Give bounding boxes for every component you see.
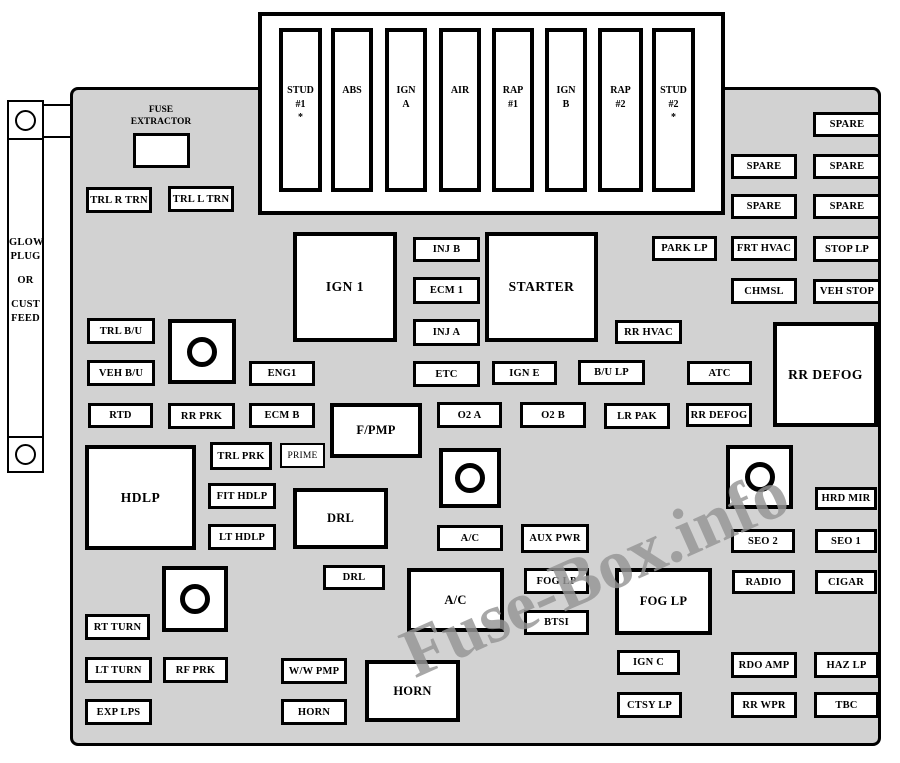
fuse-label: F/PMP: [356, 423, 395, 438]
fuse-fog-lp: FOG LP: [615, 568, 712, 635]
maxi-fuse-slot-air: AIR: [439, 28, 481, 192]
glow-plug-label-line: PLUG: [9, 250, 42, 264]
maxi-fuse-slot-label: ABS: [335, 84, 369, 98]
fuse-etc: ETC: [413, 361, 480, 387]
strip-bottom-terminal: [9, 436, 42, 471]
fuse-label: IGN E: [509, 368, 539, 379]
maxi-fuse-slot-label: B: [549, 98, 583, 112]
relay-slot-4: [162, 566, 228, 632]
fuse-label: CHMSL: [744, 286, 784, 297]
fuse-label: HRD MIR: [822, 493, 871, 504]
fuse-inj-b: INJ B: [413, 237, 480, 262]
fuse-horn: HORN: [281, 699, 347, 725]
fuse-rr-defog: RR DEFOG: [686, 403, 752, 427]
fuse-ign-c: IGN C: [617, 650, 680, 675]
fuse-seo-2: SEO 2: [731, 529, 795, 553]
relay-slot-1: [168, 319, 236, 384]
fuse-label: RT TURN: [94, 622, 142, 633]
fuse-extractor-label-line: FUSE: [108, 105, 214, 117]
fuse-o2-a: O2 A: [437, 402, 502, 428]
fuse-label: HDLP: [121, 490, 161, 506]
fuse-w-w-pmp: W/W PMP: [281, 658, 347, 684]
fuse-spare: SPARE: [813, 194, 881, 219]
maxi-fuse-slot-label: RAP: [602, 84, 639, 98]
fuse-tbc: TBC: [814, 692, 879, 718]
fuse-label: STARTER: [509, 279, 575, 295]
fuse-label: STOP LP: [825, 244, 869, 255]
maxi-fuse-slot-label: *: [283, 111, 318, 125]
fuse-label: RDO AMP: [739, 660, 790, 671]
fuse-rr-defog: RR DEFOG: [773, 322, 878, 427]
fuse-label: INJ B: [433, 244, 461, 255]
relay-circle-icon: [187, 337, 217, 367]
fuse-starter: STARTER: [485, 232, 598, 342]
fuse-label: A/C: [461, 533, 480, 544]
fuse-label: CIGAR: [828, 577, 864, 588]
fuse-lt-turn: LT TURN: [85, 657, 152, 683]
glow-plug-label-line: [9, 288, 42, 298]
fuse-label: SPARE: [830, 119, 865, 130]
fuse-aux-pwr: AUX PWR: [521, 524, 589, 553]
maxi-fuse-slot-label: #1: [496, 98, 530, 112]
maxi-fuse-slot-label: IGN: [389, 84, 423, 98]
fuse-extractor-slot: [133, 133, 190, 168]
fuse-label: AUX PWR: [529, 533, 580, 544]
fuse-label: LR PAK: [617, 411, 657, 422]
fuse-label: IGN C: [633, 657, 664, 668]
fuse-chmsl: CHMSL: [731, 278, 797, 304]
fuse-label: SPARE: [830, 161, 865, 172]
fuse-label: BTSI: [544, 617, 569, 628]
maxi-fuse-slot-label: #2: [602, 98, 639, 112]
relay-circle-icon: [745, 462, 775, 492]
fuse-label: DRL: [327, 511, 354, 526]
fuse-label: DRL: [343, 572, 366, 583]
fuse-btsi: BTSI: [524, 610, 589, 635]
fuse-label: RR DEFOG: [691, 410, 748, 421]
fuse-label: W/W PMP: [289, 666, 340, 677]
fuse-label: TRL B/U: [100, 326, 143, 337]
fuse-label: TBC: [835, 700, 857, 711]
fuse-hdlp: HDLP: [85, 445, 196, 550]
strip-top-terminal: [9, 102, 42, 140]
fuse-label: ECM 1: [430, 285, 463, 296]
fuse-label: RR PRK: [181, 411, 222, 422]
fuse-label: RR WPR: [742, 700, 785, 711]
fuse-label: ENG1: [268, 368, 297, 379]
fuse-label: SPARE: [747, 201, 782, 212]
fuse-frt-hvac: FRT HVAC: [731, 236, 797, 261]
fuse-rtd: RTD: [88, 403, 153, 428]
fuse-lt-hdlp: LT HDLP: [208, 524, 276, 550]
fuse-o2-b: O2 B: [520, 402, 586, 428]
glow-plug-strip: GLOWPLUGORCUSTFEED: [7, 100, 44, 473]
fuse-rf-prk: RF PRK: [163, 657, 228, 683]
maxi-fuse-slot-ign-a: IGNA: [385, 28, 427, 192]
fuse-box-diagram: GLOWPLUGORCUSTFEED STUD#1*ABSIGNAAIRRAP#…: [0, 0, 900, 763]
maxi-fuse-slot-rap-2: RAP#2: [598, 28, 643, 192]
fuse-drl: DRL: [293, 488, 388, 549]
fuse-label: ECM B: [264, 410, 299, 421]
glow-plug-label-line: FEED: [9, 312, 42, 326]
fuse-seo-1: SEO 1: [815, 529, 877, 553]
maxi-fuse-slot-rap-1: RAP#1: [492, 28, 534, 192]
glow-plug-label: GLOWPLUGORCUSTFEED: [9, 236, 42, 326]
maxi-fuse-slot-abs: ABS: [331, 28, 373, 192]
fuse-trl-b-u: TRL B/U: [87, 318, 155, 344]
maxi-fuse-slot-label: AIR: [443, 84, 477, 98]
fuse-spare: SPARE: [813, 112, 881, 137]
fuse-label: FOG LP: [640, 594, 687, 609]
fuse-ign-e: IGN E: [492, 361, 557, 385]
fuse-label: RADIO: [745, 577, 781, 588]
fuse-rr-wpr: RR WPR: [731, 692, 797, 718]
fuse-label: HORN: [393, 684, 431, 699]
fuse-rr-hvac: RR HVAC: [615, 320, 682, 344]
terminal-hole-icon: [15, 110, 36, 131]
fuse-trl-r-trn: TRL R TRN: [86, 187, 152, 213]
maxi-fuse-slot-label: STUD: [656, 84, 691, 98]
fuse-label: RF PRK: [176, 665, 216, 676]
fuse-trl-prk: TRL PRK: [210, 442, 272, 470]
fuse-label: O2 B: [541, 410, 565, 421]
maxi-fuse-slot-label: #2: [656, 98, 691, 112]
fuse-label: CTSY LP: [627, 700, 672, 711]
maxi-fuse-slot-label: RAP: [496, 84, 530, 98]
fuse-ecm-1: ECM 1: [413, 277, 480, 304]
fuse-label: ETC: [435, 369, 457, 380]
fuse-park-lp: PARK LP: [652, 236, 717, 261]
fuse-inj-a: INJ A: [413, 319, 480, 346]
fuse-b-u-lp: B/U LP: [578, 360, 645, 385]
fuse-rdo-amp: RDO AMP: [731, 652, 797, 678]
fuse-lr-pak: LR PAK: [604, 403, 670, 429]
maxi-fuse-slot-stud-1: STUD#1*: [279, 28, 322, 192]
fuse-cigar: CIGAR: [815, 570, 877, 594]
fuse-label: INJ A: [433, 327, 461, 338]
fuse-label: VEH STOP: [820, 286, 874, 297]
fuse-a-c: A/C: [437, 525, 503, 551]
fuse-fit-hdlp: FIT HDLP: [208, 483, 276, 509]
fuse-trl-l-trn: TRL L TRN: [168, 186, 234, 212]
fuse-label: SPARE: [747, 161, 782, 172]
fuse-ign-1: IGN 1: [293, 232, 397, 342]
relay-slot-3: [726, 445, 793, 509]
fuse-label: PRIME: [287, 451, 317, 461]
fuse-radio: RADIO: [732, 570, 795, 594]
fuse-label: EXP LPS: [97, 707, 141, 718]
fuse-rr-prk: RR PRK: [168, 403, 235, 429]
fuse-spare: SPARE: [813, 154, 881, 179]
relay-circle-icon: [455, 463, 485, 493]
fuse-f-pmp: F/PMP: [330, 403, 422, 458]
fuse-label: A/C: [444, 593, 466, 608]
fuse-label: B/U LP: [594, 367, 629, 378]
fuse-label: RR DEFOG: [788, 367, 863, 383]
glow-plug-label-line: [9, 264, 42, 274]
fuse-veh-stop: VEH STOP: [813, 279, 881, 304]
fuse-haz-lp: HAZ LP: [814, 652, 879, 678]
relay-slot-2: [439, 448, 501, 508]
maxi-fuse-slot-label: IGN: [549, 84, 583, 98]
fuse-label: SEO 2: [748, 536, 778, 547]
fuse-label: TRL R TRN: [90, 195, 148, 206]
maxi-fuse-slot-label: A: [389, 98, 423, 112]
fuse-atc: ATC: [687, 361, 752, 385]
fuse-rt-turn: RT TURN: [85, 614, 150, 640]
fuse-label: VEH B/U: [99, 368, 143, 379]
maxi-fuse-slot-label: STUD: [283, 84, 318, 98]
fuse-spare: SPARE: [731, 194, 797, 219]
fuse-label: SPARE: [830, 201, 865, 212]
fuse-label: FRT HVAC: [737, 243, 791, 254]
fuse-horn: HORN: [365, 660, 460, 722]
fuse-label: FIT HDLP: [217, 491, 268, 502]
maxi-fuse-slot-ign-b: IGNB: [545, 28, 587, 192]
maxi-fuse-slot-label: *: [656, 111, 691, 125]
fuse-label: TRL PRK: [217, 451, 264, 462]
relay-circle-icon: [180, 584, 210, 614]
glow-plug-label-line: CUST: [9, 298, 42, 312]
fuse-hrd-mir: HRD MIR: [815, 487, 877, 510]
terminal-hole-icon: [15, 444, 36, 465]
fuse-label: HORN: [298, 707, 330, 718]
fuse-label: ATC: [709, 368, 731, 379]
fuse-prime: PRIME: [280, 443, 325, 468]
fuse-label: LT TURN: [95, 665, 141, 676]
fuse-a-c: A/C: [407, 568, 504, 632]
fuse-extractor-label: FUSEEXTRACTOR: [108, 105, 214, 128]
fuse-ctsy-lp: CTSY LP: [617, 692, 682, 718]
fuse-veh-b-u: VEH B/U: [87, 360, 155, 386]
fuse-eng1: ENG1: [249, 361, 315, 386]
fuse-ecm-b: ECM B: [249, 403, 315, 428]
glow-plug-label-line: OR: [9, 274, 42, 288]
fuse-label: O2 A: [458, 410, 482, 421]
fuse-label: IGN 1: [326, 279, 364, 295]
maxi-fuse-slot-label: #1: [283, 98, 318, 112]
fuse-fog-lp: FOG LP: [524, 568, 589, 594]
fuse-stop-lp: STOP LP: [813, 236, 881, 262]
strip-connector-line: [43, 104, 71, 106]
fuse-label: RR HVAC: [624, 327, 673, 338]
fuse-exp-lps: EXP LPS: [85, 699, 152, 725]
fuse-label: LT HDLP: [219, 532, 265, 543]
glow-plug-label-line: GLOW: [9, 236, 42, 250]
fuse-label: TRL L TRN: [173, 194, 229, 205]
fuse-label: FOG LP: [537, 576, 577, 587]
fuse-label: PARK LP: [661, 243, 707, 254]
fuse-spare: SPARE: [731, 154, 797, 179]
maxi-fuse-slot-stud-2: STUD#2*: [652, 28, 695, 192]
strip-connector-line: [43, 136, 71, 138]
fuse-label: SEO 1: [831, 536, 861, 547]
fuse-drl: DRL: [323, 565, 385, 590]
fuse-label: HAZ LP: [827, 660, 867, 671]
fuse-extractor-label-line: EXTRACTOR: [108, 117, 214, 129]
fuse-label: RTD: [109, 410, 131, 421]
